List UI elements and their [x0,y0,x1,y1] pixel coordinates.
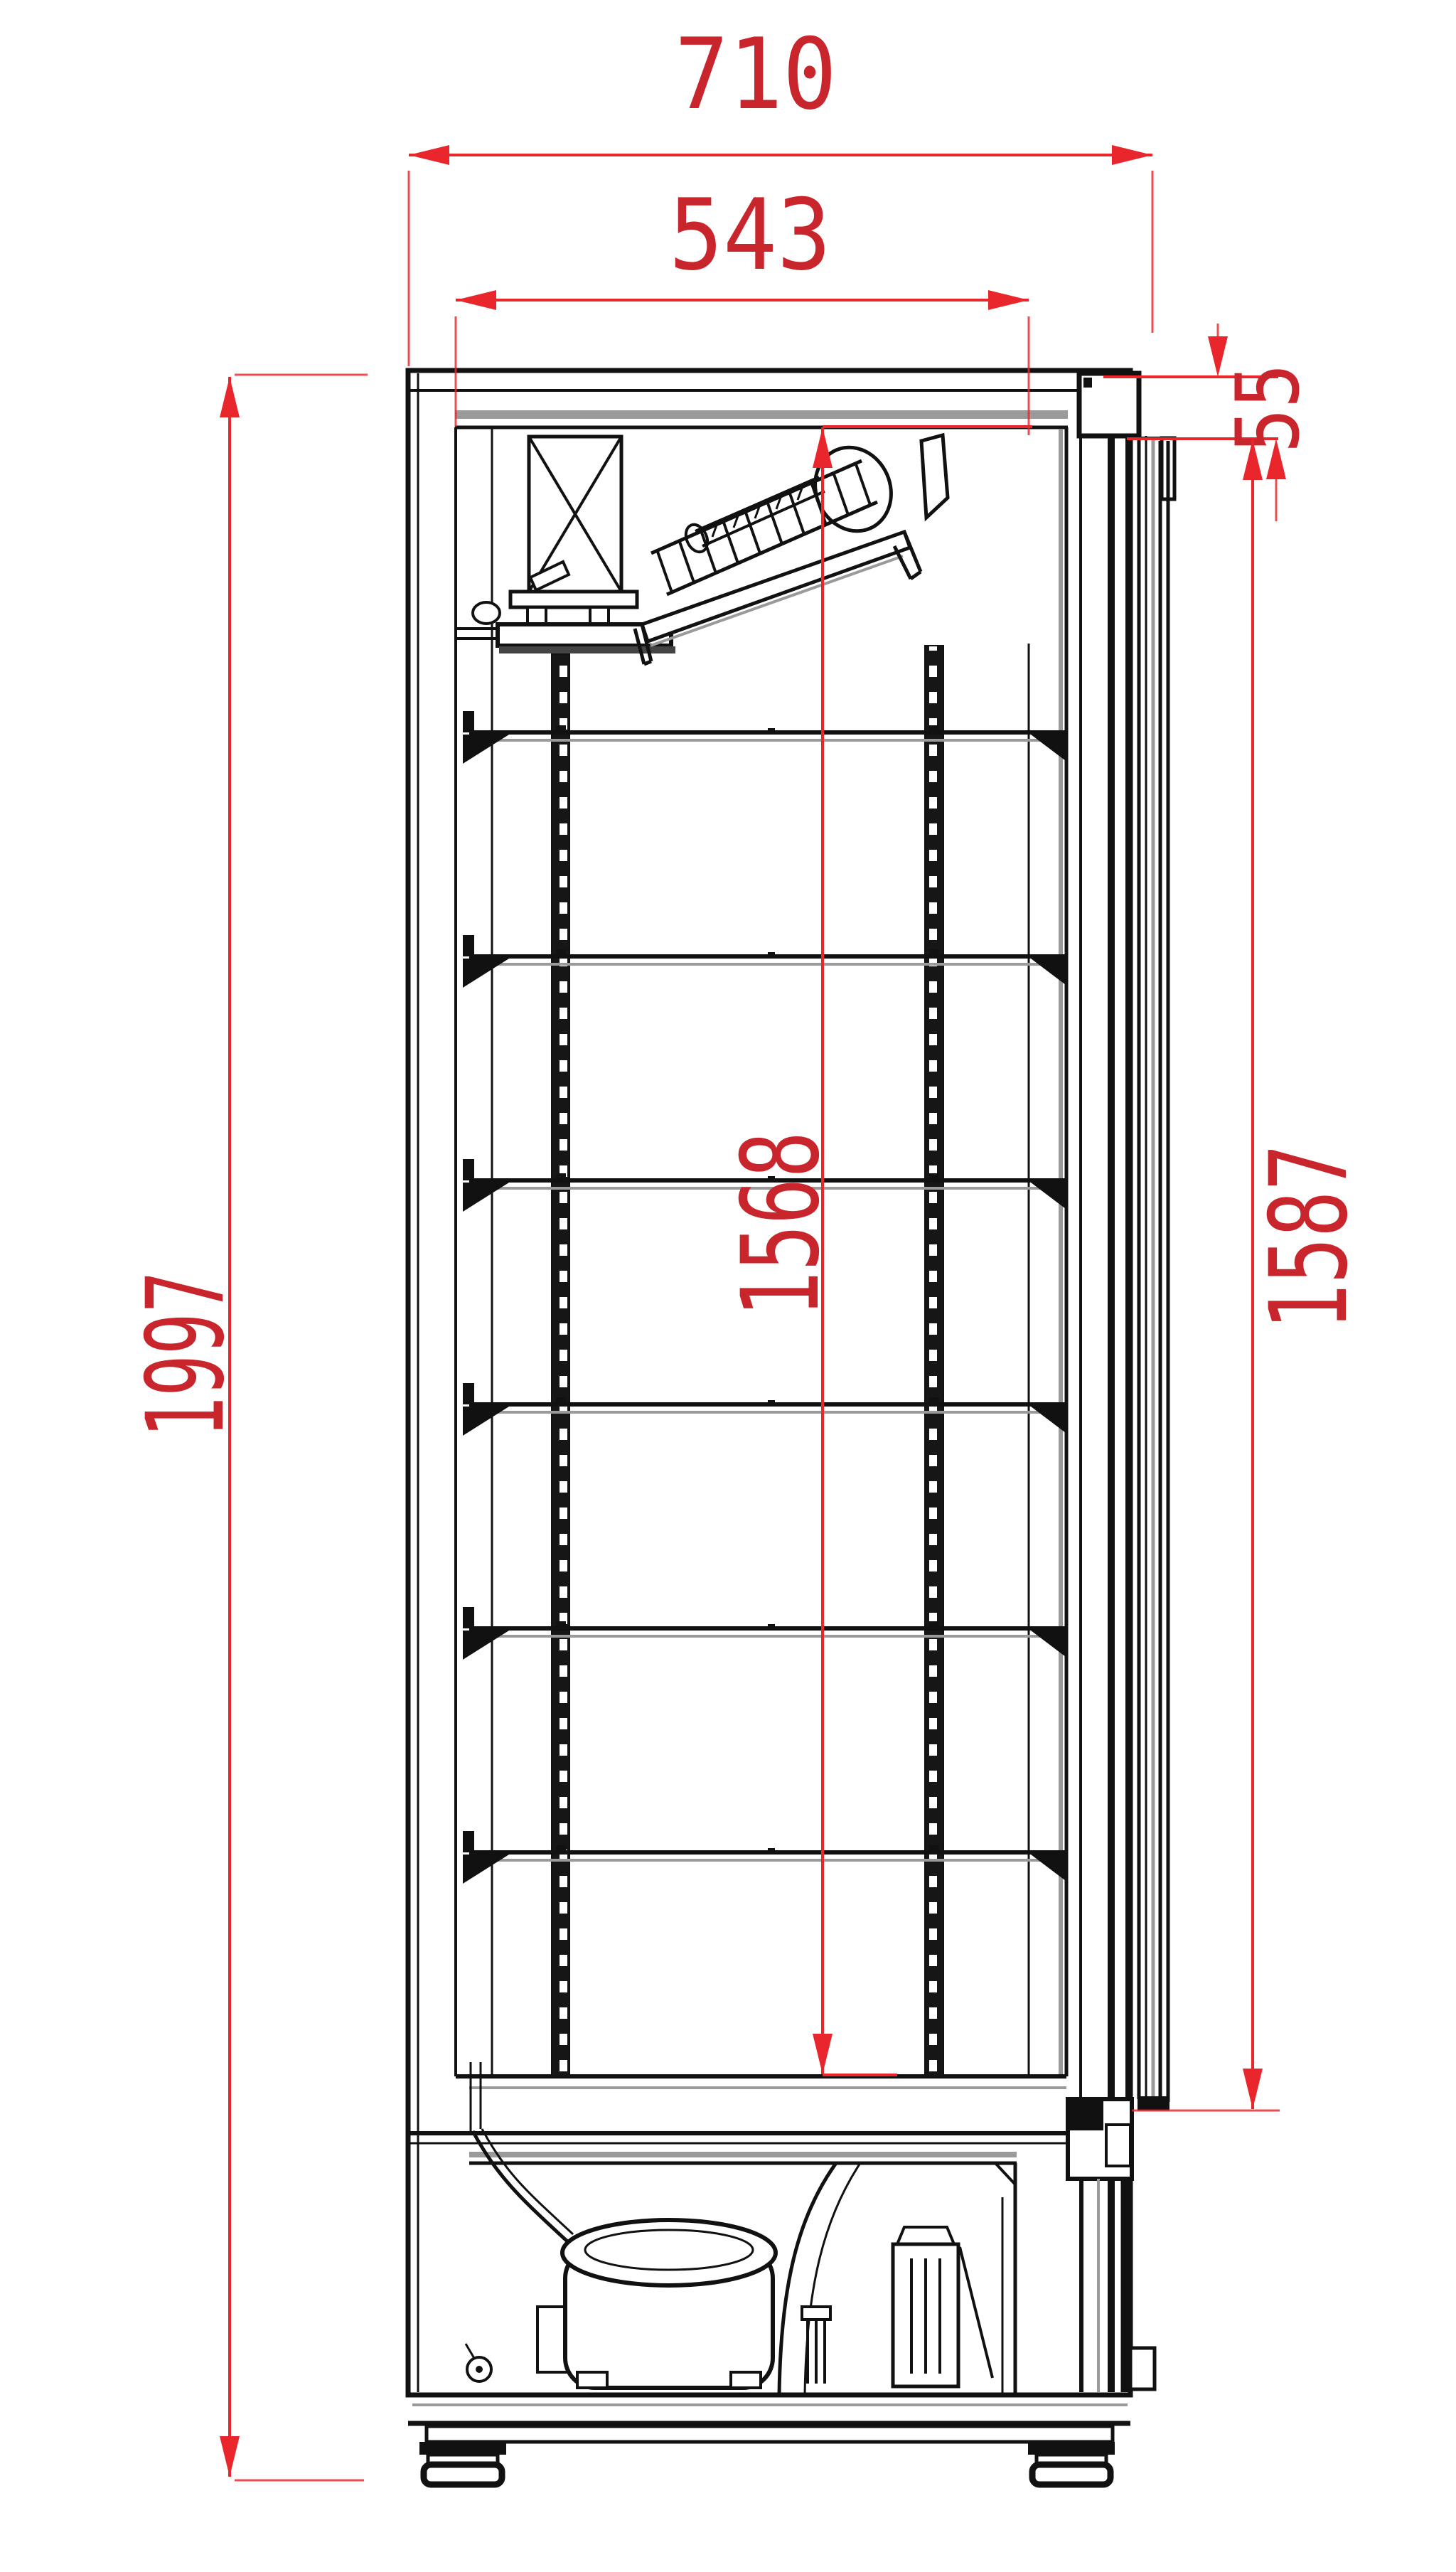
shelf-standard-front [925,646,943,2076]
arrowhead [1243,2069,1263,2109]
dimension-label: 710 [675,17,837,132]
shelf-standard-rear [552,654,569,2076]
dimension-label: 1568 [719,1131,843,1318]
arrowhead [220,377,240,417]
arrowhead [456,290,496,310]
drawing-canvas: 710 543 55 1568 1587 [0,0,1456,2572]
dim-overall-height: 1997 [124,375,368,2480]
right-foot [1032,2465,1110,2485]
arrowhead [220,2436,240,2477]
base-frame [408,2405,1130,2485]
arrowhead [1112,145,1152,165]
dimension-label: 1997 [124,1271,248,1439]
left-foot [424,2465,502,2485]
door-bottom-cap [1137,2096,1169,2111]
arrowhead [409,145,449,165]
dimension-label: 543 [669,178,831,292]
dimension-label: 55 [1218,363,1319,453]
arrowhead [988,290,1029,310]
dimension-label: 1587 [1248,1144,1371,1330]
cabinet-body [408,370,1133,2395]
technical-drawing: 710 543 55 1568 1587 [0,0,1456,2572]
